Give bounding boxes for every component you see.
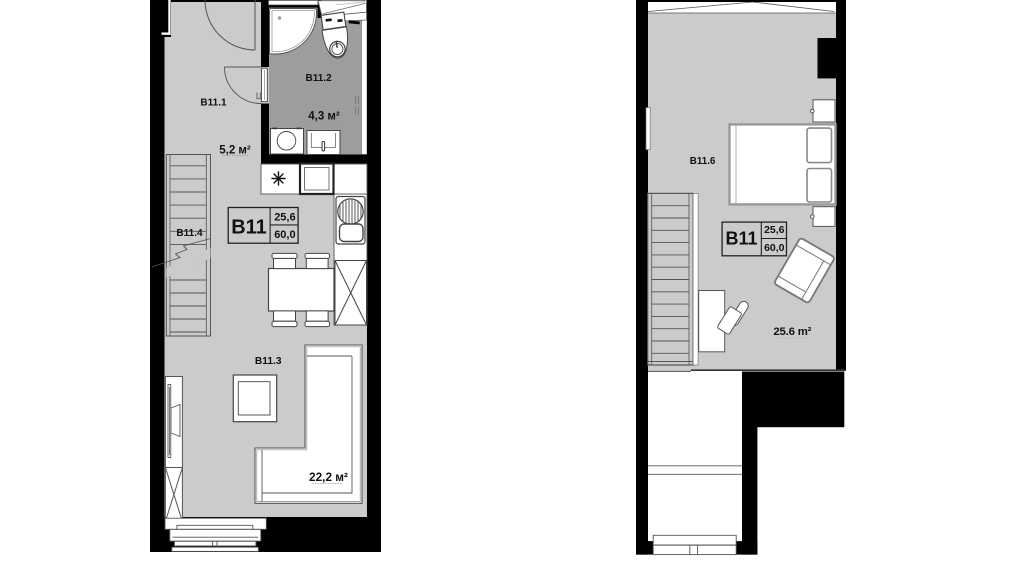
svg-text:60,0: 60,0 (764, 242, 785, 254)
svg-text:B11: B11 (725, 229, 757, 249)
svg-text:60,0: 60,0 (274, 229, 295, 241)
svg-text:25,6: 25,6 (764, 224, 785, 236)
svg-text:25,6: 25,6 (274, 211, 295, 223)
svg-text:25.6 m²: 25.6 m² (773, 326, 811, 338)
svg-text:B11.2: B11.2 (306, 73, 333, 84)
svg-text:22,2 м²: 22,2 м² (309, 470, 348, 484)
svg-text:5,2 м²: 5,2 м² (219, 145, 251, 157)
svg-text:4,3 м²: 4,3 м² (308, 111, 340, 123)
svg-text:B11.3: B11.3 (255, 356, 282, 367)
svg-text:B11.4: B11.4 (176, 228, 203, 239)
svg-text:B11: B11 (231, 216, 267, 238)
svg-text:B11.6: B11.6 (690, 156, 716, 167)
svg-text:B11.1: B11.1 (200, 98, 227, 109)
